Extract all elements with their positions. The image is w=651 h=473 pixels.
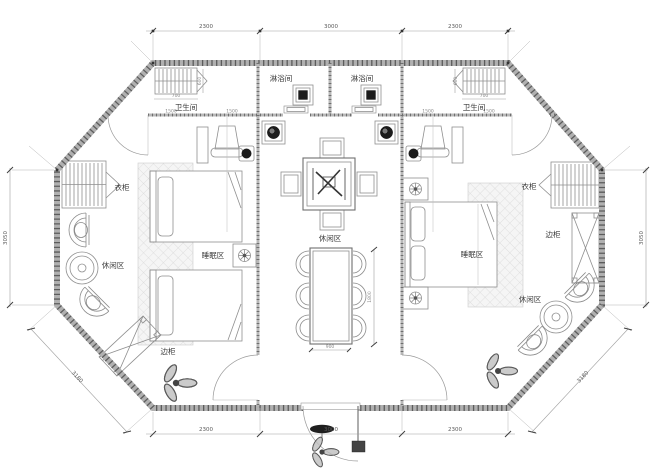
lamp-icon [410,183,422,195]
sleep-right-label: 睡眠区 [461,250,484,259]
dim-fixture-left: 700 [172,93,181,99]
entrance-threshold [301,403,360,410]
leisure-center-label: 休闲区 [319,233,342,243]
dim-left-side: 3050 [3,231,9,245]
bed-left-2 [150,270,242,341]
shower-left-label: 淋浴间 [270,73,293,83]
shower-threshold-left [284,106,308,113]
leisure-left-label: 休闲区 [102,260,125,270]
cabinet-left-label: 边柜 [161,346,176,356]
dim-right-side: 3050 [639,231,645,245]
dim-top-right: 2300 [448,24,462,30]
wardrobe-right-label: 衣柜 [522,181,537,191]
toilet-right-label: 卫生间 [463,102,486,112]
dim-dining-length: 1800 [367,291,373,303]
dim-bottom-center: 3000 [324,427,338,433]
dim-seg: 1500 [226,109,238,115]
leisure-right-label: 休闲区 [519,294,542,304]
sleep-left-label: 睡眠区 [202,251,225,260]
dim-bottom-right: 2300 [448,427,462,433]
shower-threshold-right [352,106,376,113]
lamp-icon [239,250,251,262]
lamp-icon [410,292,422,304]
floor-plan: 2300 3000 2300 2300 3000 2300 3050 3050 … [0,0,651,473]
dim-fixture-depth-left: 600 [197,77,203,86]
dim-seg: 1500 [422,109,434,115]
dim-dining-width: 900 [326,344,335,350]
dim-bottom-left: 2300 [199,427,213,433]
shower-right-label: 淋浴间 [351,73,374,83]
dim-top-left: 2300 [199,24,213,30]
bed-left-1 [150,171,242,242]
dim-fixture-depth-right: 600 [453,77,459,86]
bed-right [405,202,497,287]
dim-fixture-right: 700 [480,93,489,99]
wardrobe-left-label: 衣柜 [115,182,130,192]
shower-drain-left [293,85,313,105]
toilet-left-label: 卫生间 [175,102,198,112]
dim-top-center: 3000 [324,24,338,30]
floor-plan-canvas: 2300 3000 2300 2300 3000 2300 3050 3050 … [0,0,651,473]
door-leaf-end [352,441,365,452]
shower-drain-right [361,85,381,105]
cabinet-right-label: 边柜 [546,229,561,239]
